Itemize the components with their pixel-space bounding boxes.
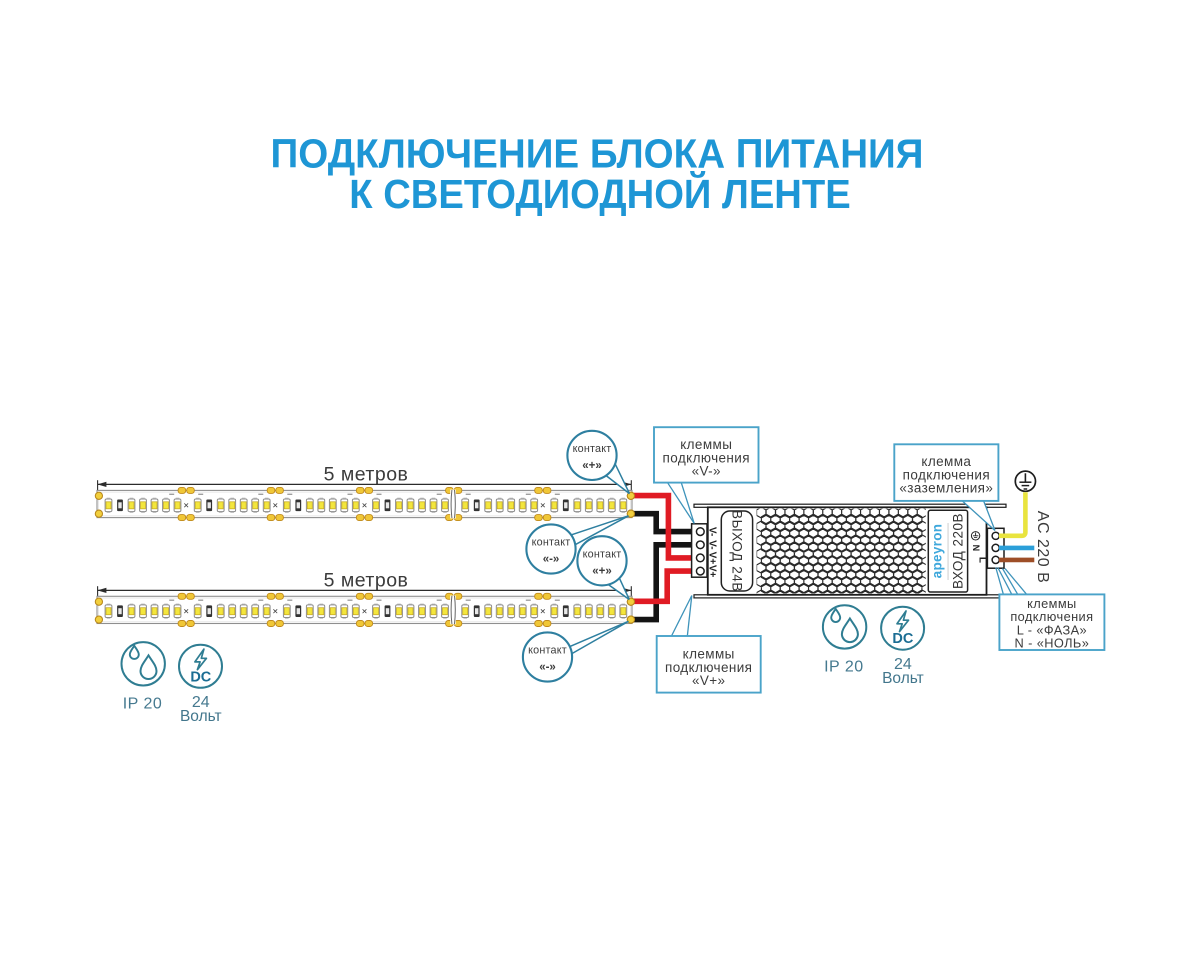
svg-text:Вольт: Вольт: [180, 708, 222, 725]
svg-text:ВХОД 220В: ВХОД 220В: [950, 513, 965, 589]
svg-text:IP 20: IP 20: [123, 696, 163, 713]
svg-text:контакт: контакт: [532, 537, 571, 549]
svg-text:V-: V-: [706, 527, 717, 536]
svg-text:контакт: контакт: [583, 548, 622, 560]
svg-text:контакт: контакт: [528, 645, 567, 657]
svg-text:IP 20: IP 20: [824, 659, 864, 676]
svg-text:DC: DC: [190, 669, 211, 685]
svg-text:ВЫХОД 24В: ВЫХОД 24В: [730, 510, 745, 592]
svg-text:5 метров: 5 метров: [324, 464, 409, 486]
svg-text:«+»: «+»: [582, 460, 602, 472]
svg-text:«заземления»: «заземления»: [899, 481, 993, 496]
svg-text:L: L: [977, 557, 988, 563]
svg-text:V-: V-: [706, 540, 717, 549]
svg-text:«V+»: «V+»: [692, 673, 726, 688]
svg-text:V+: V+: [706, 552, 717, 565]
svg-text:N: N: [971, 545, 981, 552]
svg-text:N - «НОЛЬ»: N - «НОЛЬ»: [1015, 636, 1090, 651]
svg-text:Вольт: Вольт: [882, 670, 924, 687]
svg-text:«+»: «+»: [592, 565, 612, 577]
svg-text:DC: DC: [892, 631, 913, 647]
svg-text:«V-»: «V-»: [692, 464, 721, 479]
svg-text:V+: V+: [706, 565, 717, 578]
svg-text:ПОДКЛЮЧЕНИЕ БЛОКА ПИТАНИЯ: ПОДКЛЮЧЕНИЕ БЛОКА ПИТАНИЯ: [271, 130, 924, 176]
svg-text:AC 220 В: AC 220 В: [1034, 511, 1051, 583]
svg-text:apeyron: apeyron: [929, 524, 944, 579]
svg-text:контакт: контакт: [573, 443, 612, 455]
svg-text:«-»: «-»: [543, 554, 560, 566]
svg-text:К СВЕТОДИОДНОЙ ЛЕНТЕ: К СВЕТОДИОДНОЙ ЛЕНТЕ: [349, 171, 851, 217]
svg-text:«-»: «-»: [539, 662, 556, 674]
svg-text:5 метров: 5 метров: [324, 570, 409, 592]
